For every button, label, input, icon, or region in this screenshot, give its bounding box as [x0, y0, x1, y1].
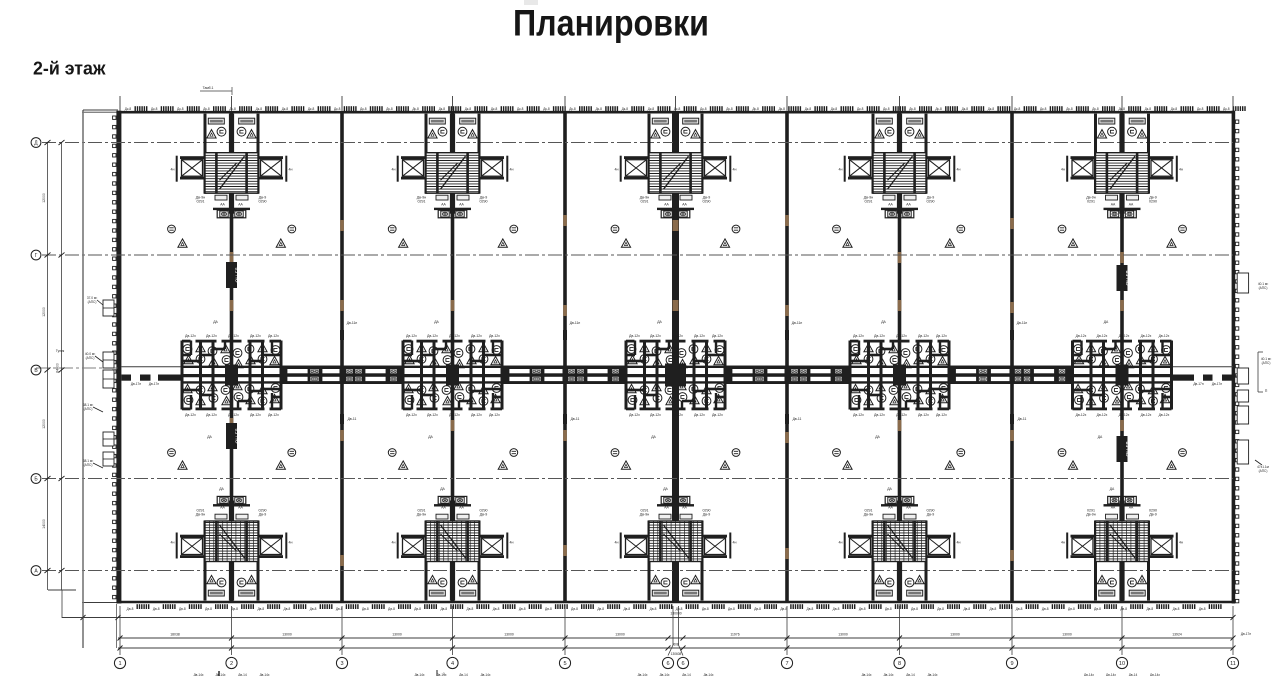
svg-text:Дв-8: Дв-8 [754, 607, 761, 611]
svg-text:Дв-8: Дв-8 [1016, 607, 1023, 611]
svg-text:Дв-17н: Дв-17н [131, 382, 141, 386]
svg-text:4: 4 [451, 661, 454, 667]
svg-text:13000: 13000 [838, 633, 848, 637]
svg-text:Дк-8: Дк-8 [805, 107, 812, 111]
svg-text:Дв-8: Дв-8 [310, 607, 317, 611]
svg-text:Дк-8: Дк-8 [1040, 107, 1047, 111]
svg-text:13000: 13000 [1062, 633, 1072, 637]
svg-text:Дк-8: Дк-8 [360, 107, 367, 111]
svg-text:11: 11 [1230, 661, 1236, 667]
svg-text:Дв-8: Дв-8 [833, 607, 840, 611]
svg-text:Дв-17н: Дв-17н [149, 382, 159, 386]
svg-text:Дк-8: Дк-8 [517, 107, 524, 111]
svg-text:Дк-8: Дк-8 [412, 107, 419, 111]
svg-text:Дв-8: Дв-8 [990, 607, 997, 611]
svg-text:13000: 13000 [615, 633, 625, 637]
svg-text:Дв-11: Дв-11 [1018, 417, 1027, 421]
svg-text:2: 2 [230, 661, 233, 667]
svg-text:ДА: ДА [657, 320, 662, 324]
svg-text:Дв-8: Дв-8 [807, 607, 814, 611]
svg-text:(АПС): (АПС) [84, 407, 93, 411]
svg-text:2-й этаж: 2-й этаж [33, 58, 106, 79]
svg-text:Дв-17н: Дв-17н [1212, 382, 1222, 386]
svg-text:ДА: ДА [434, 320, 439, 324]
svg-text:Дк-8: Дк-8 [962, 107, 969, 111]
svg-text:Дк-8: Дк-8 [386, 107, 393, 111]
svg-text:Дв-8: Дв-8 [623, 607, 630, 611]
svg-text:Дв-8: Дв-8 [467, 607, 474, 611]
svg-text:13000: 13000 [504, 633, 514, 637]
svg-text:5: 5 [563, 661, 566, 667]
svg-text:Дв-8: Дв-8 [284, 607, 291, 611]
svg-text:14000: 14000 [42, 519, 46, 529]
svg-text:Дв-8: Дв-8 [519, 607, 526, 611]
svg-text:608: 608 [673, 643, 679, 647]
svg-text:Дв-8: Дв-8 [1173, 607, 1180, 611]
svg-text:ДА: ДА [887, 487, 892, 491]
svg-text:ОЦ-ГЛ: ОЦ-ГЛ [236, 268, 242, 283]
svg-text:Дв-8: Дв-8 [911, 607, 918, 611]
svg-text:Дк-8: Дк-8 [648, 107, 655, 111]
svg-text:Дв-8: Дв-8 [440, 607, 447, 611]
svg-text:7: 7 [785, 661, 788, 667]
svg-text:ДА: ДА [881, 320, 886, 324]
svg-text:Дк-8: Дк-8 [1171, 107, 1178, 111]
svg-text:13000: 13000 [282, 633, 292, 637]
svg-text:Дк-8: Дк-8 [1223, 107, 1230, 111]
svg-text:Дв-8: Дв-8 [702, 607, 709, 611]
svg-text:Дв-8: Дв-8 [859, 607, 866, 611]
svg-text:18038: 18038 [170, 633, 180, 637]
svg-text:Дв-8: Дв-8 [963, 607, 970, 611]
svg-text:3: 3 [340, 661, 343, 667]
svg-text:Дв-8: Дв-8 [1042, 607, 1049, 611]
svg-text:Дв-8: Дв-8 [1199, 607, 1206, 611]
svg-text:Дв-11: Дв-11 [793, 417, 802, 421]
svg-text:Дв-8: Дв-8 [257, 607, 264, 611]
svg-text:Дк-8: Дк-8 [935, 107, 942, 111]
svg-text:Дв-8: Дв-8 [728, 607, 735, 611]
svg-text:ДА: ДА [875, 435, 880, 439]
svg-text:Дв-8: Дв-8 [179, 607, 186, 611]
svg-text:Дв-8: Дв-8 [153, 607, 160, 611]
svg-text:Дк-8: Дк-8 [752, 107, 759, 111]
svg-text:Дв-8: Дв-8 [388, 607, 395, 611]
svg-text:Дв-8: Дв-8 [493, 607, 500, 611]
svg-text:Дк-8: Дк-8 [177, 107, 184, 111]
svg-text:Дв-8: Дв-8 [414, 607, 421, 611]
svg-text:Планировки: Планировки [513, 3, 709, 44]
svg-text:Дв-8: Дв-8 [205, 607, 212, 611]
svg-text:ДА: ДА [651, 435, 656, 439]
svg-text:(АПС): (АПС) [88, 300, 97, 304]
svg-text:ОЦ-ГЛ: ОЦ-ГЛ [236, 429, 242, 444]
svg-text:Дк-8: Дк-8 [831, 107, 838, 111]
svg-text:Дк-8: Дк-8 [883, 107, 890, 111]
svg-text:13000: 13000 [392, 633, 402, 637]
svg-text:ДА: ДА [440, 487, 445, 491]
svg-text:12000: 12000 [42, 307, 46, 317]
svg-text:Дв-8: Дв-8 [780, 607, 787, 611]
svg-text:Дв-8: Дв-8 [1120, 607, 1127, 611]
svg-text:Дв-8: Дв-8 [885, 607, 892, 611]
svg-text:Дв-11: Дв-11 [348, 417, 357, 421]
svg-text:Дк-8: Дк-8 [282, 107, 289, 111]
svg-text:1: 1 [118, 661, 121, 667]
svg-text:Дк-8: Дк-8 [1145, 107, 1152, 111]
svg-text:Дв-11н: Дв-11н [792, 321, 803, 325]
svg-text:Дв-8: Дв-8 [545, 607, 552, 611]
svg-text:6: 6 [666, 661, 669, 667]
svg-text:Дв-11н: Дв-11н [1017, 321, 1028, 325]
svg-text:Дк-8: Дк-8 [726, 107, 733, 111]
svg-text:ОЦ-ГЛ: ОЦ-ГЛ [1126, 271, 1132, 286]
svg-text:10: 10 [1119, 661, 1125, 667]
svg-text:Тамб.1: Тамб.1 [203, 86, 214, 90]
svg-text:8: 8 [898, 661, 901, 667]
svg-text:ДА: ДА [213, 320, 218, 324]
svg-text:Дк-8: Дк-8 [700, 107, 707, 111]
svg-text:ДА: ДА [1110, 487, 1115, 491]
svg-text:Дк-8: Дк-8 [229, 107, 236, 111]
svg-text:Дк-8: Дк-8 [256, 107, 263, 111]
svg-text:Дв-11: Дв-11 [571, 417, 580, 421]
svg-text:Дк-8: Дк-8 [622, 107, 629, 111]
svg-text:Дк-8: Дк-8 [674, 107, 681, 111]
svg-text:Дк-8: Дк-8 [308, 107, 315, 111]
svg-text:6: 6 [681, 661, 684, 667]
svg-text:Дв-8: Дв-8 [571, 607, 578, 611]
svg-text:Дв-8: Дв-8 [676, 607, 683, 611]
svg-text:9: 9 [1010, 661, 1013, 667]
svg-text:13000: 13000 [950, 633, 960, 637]
svg-text:П: П [1265, 389, 1268, 393]
svg-text:Дв-8: Дв-8 [650, 607, 657, 611]
svg-text:Дк-8: Дк-8 [491, 107, 498, 111]
svg-text:ОЦ-ГЛ: ОЦ-ГЛ [1126, 442, 1132, 457]
svg-text:(АПС): (АПС) [1259, 286, 1268, 290]
svg-text:Дв-8: Дв-8 [597, 607, 604, 611]
svg-text:(АПС): (АПС) [84, 463, 93, 467]
svg-text:12000: 12000 [42, 419, 46, 429]
svg-text:Дв-8: Дв-8 [127, 607, 134, 611]
svg-text:64800: 64800 [56, 363, 60, 373]
svg-text:Дк-8: Дк-8 [779, 107, 786, 111]
svg-text:Дк-8: Дк-8 [569, 107, 576, 111]
svg-text:Дв-17н: Дв-17н [1193, 382, 1203, 386]
svg-text:Дк-8: Дк-8 [1197, 107, 1204, 111]
svg-text:Дв-8: Дв-8 [231, 607, 238, 611]
svg-text:130000: 130000 [670, 612, 681, 616]
svg-text:Дк-8: Дк-8 [439, 107, 446, 111]
svg-text:Дк-8: Дк-8 [909, 107, 916, 111]
svg-text:Дк-8: Дк-8 [988, 107, 995, 111]
svg-text:11976: 11976 [730, 633, 739, 637]
svg-text:Дв-8: Дв-8 [937, 607, 944, 611]
svg-text:Г: Г [35, 253, 38, 259]
svg-text:Дк-8: Дк-8 [543, 107, 550, 111]
svg-text:ДА: ДА [428, 435, 433, 439]
svg-text:Дк-8: Дк-8 [334, 107, 341, 111]
svg-text:(АПС): (АПС) [86, 356, 95, 360]
svg-text:Дв-8: Дв-8 [1094, 607, 1101, 611]
svg-text:Дв-11н: Дв-11н [570, 321, 581, 325]
svg-text:Дк-8: Дк-8 [465, 107, 472, 111]
svg-text:Дв-8: Дв-8 [1068, 607, 1075, 611]
svg-text:(АПС): (АПС) [1259, 469, 1268, 473]
svg-text:Дк-8: Дк-8 [857, 107, 864, 111]
svg-text:Дк-8: Дк-8 [1066, 107, 1073, 111]
svg-text:Тупик: Тупик [56, 349, 65, 353]
svg-text:Дк-8: Дк-8 [1014, 107, 1021, 111]
svg-text:ДА: ДА [219, 487, 224, 491]
svg-text:Дк-8: Дк-8 [1092, 107, 1099, 111]
svg-text:Дк-8: Дк-8 [125, 107, 132, 111]
svg-text:ДА: ДА [1104, 320, 1109, 324]
svg-text:130608: 130608 [671, 652, 682, 656]
svg-text:ДА: ДА [207, 435, 212, 439]
svg-text:Дв-8: Дв-8 [362, 607, 369, 611]
svg-text:ДА: ДА [663, 487, 668, 491]
svg-text:Дв-17н: Дв-17н [1241, 632, 1251, 636]
svg-text:Дв-11н: Дв-11н [347, 321, 358, 325]
svg-text:13924: 13924 [1172, 633, 1182, 637]
svg-text:Дв-8: Дв-8 [1146, 607, 1153, 611]
svg-text:Дк-8: Дк-8 [203, 107, 210, 111]
svg-text:Дк-8: Дк-8 [596, 107, 603, 111]
svg-text:12000: 12000 [42, 193, 46, 203]
svg-text:(АПС): (АПС) [1262, 361, 1271, 365]
svg-text:ДА: ДА [1098, 435, 1103, 439]
svg-text:Дк-8: Дк-8 [151, 107, 158, 111]
svg-text:1: 1 [443, 672, 445, 676]
